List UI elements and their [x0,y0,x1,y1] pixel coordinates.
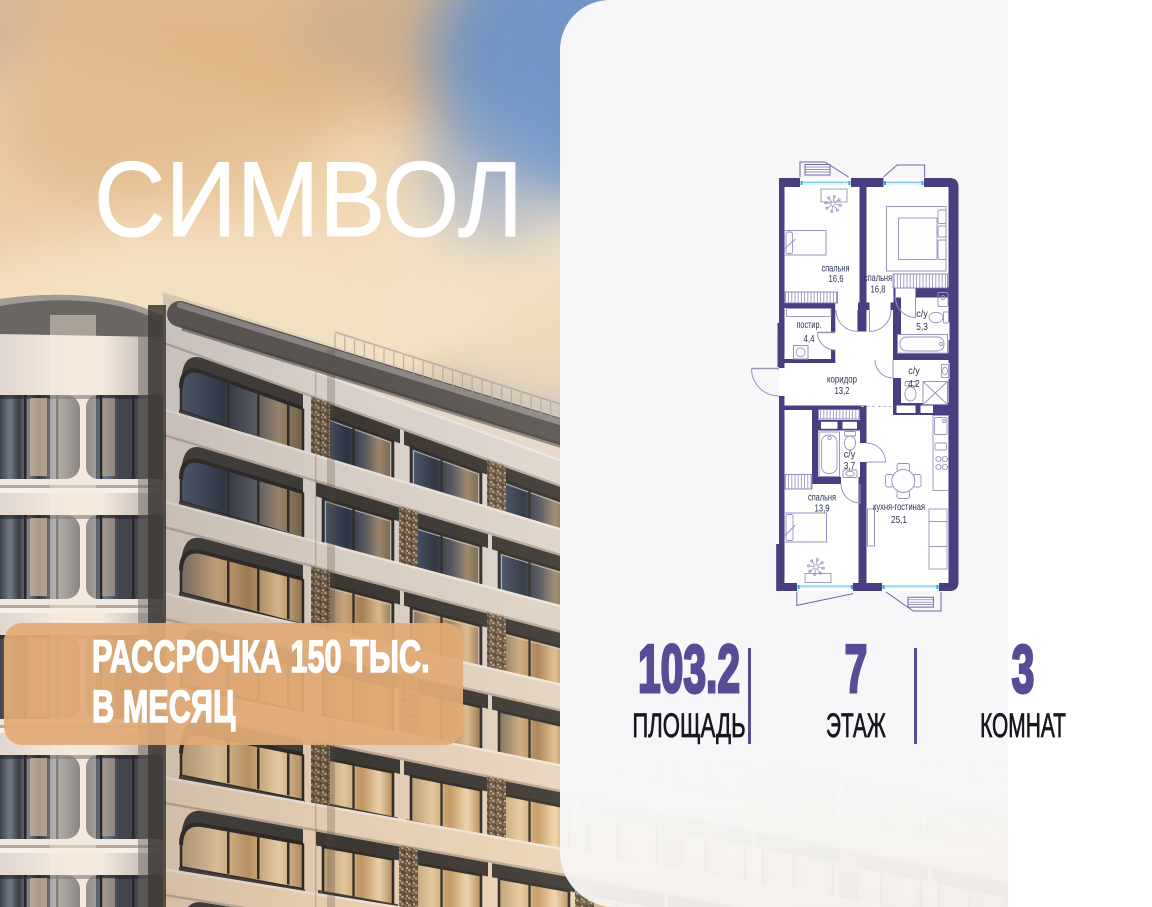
svg-text:25,1: 25,1 [891,515,907,526]
svg-text:спальня: спальня [864,273,892,284]
svg-text:спальня: спальня [808,493,836,504]
svg-text:с/у: с/у [916,309,928,320]
svg-text:кухня-гостиная: кухня-гостиная [873,502,925,513]
svg-text:3,7: 3,7 [844,461,856,472]
svg-text:спальня: спальня [822,264,850,275]
svg-text:5,3: 5,3 [916,322,928,333]
svg-text:16,6: 16,6 [829,274,844,285]
svg-text:13,9: 13,9 [815,504,830,515]
svg-text:16,8: 16,8 [871,285,886,296]
svg-text:с/у: с/у [908,366,920,377]
svg-text:4,2: 4,2 [908,379,920,390]
svg-text:коридор: коридор [827,375,857,386]
svg-text:постир.: постир. [797,320,822,331]
svg-text:13,2: 13,2 [835,386,850,397]
svg-text:4,4: 4,4 [804,334,815,345]
svg-text:с/у: с/у [844,450,856,461]
